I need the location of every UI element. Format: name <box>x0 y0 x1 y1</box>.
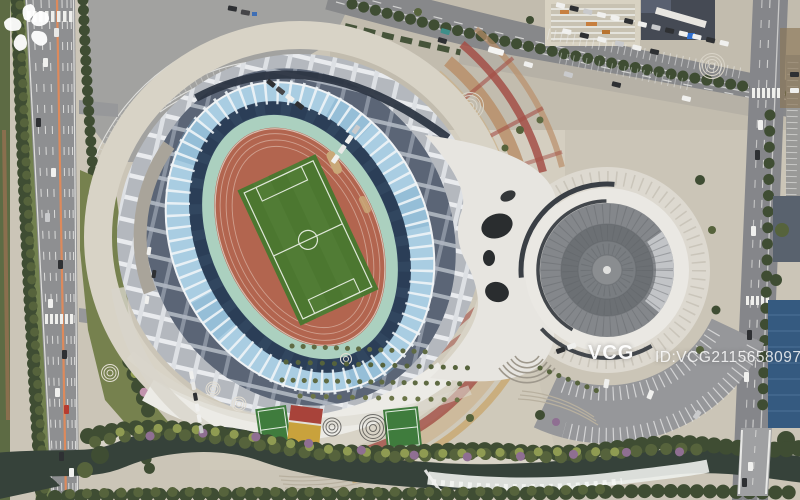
dome-hub <box>603 266 611 274</box>
canopy-opening <box>483 250 495 266</box>
aerial-scene <box>0 0 800 500</box>
red-car <box>64 405 69 414</box>
aerial-photo-canvas: VCG ID:VCG211565809740 <box>0 0 800 500</box>
blue-sign <box>252 12 257 16</box>
blue-roof-building <box>768 300 800 428</box>
